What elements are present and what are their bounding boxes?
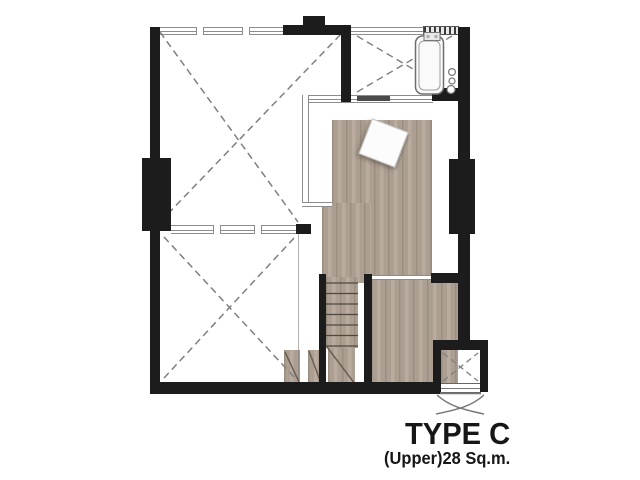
plan-type-label: TYPE C — [384, 419, 510, 449]
fixtures-layer — [0, 0, 640, 480]
condensing-unit-icon — [436, 394, 484, 415]
shower-controls-icon — [447, 69, 455, 94]
plan-area-label: (Upper)28 Sq.m. — [384, 449, 510, 468]
plan-caption: TYPE C (Upper)28 Sq.m. — [384, 419, 510, 468]
bathtub-icon — [416, 33, 444, 95]
floor-plan: TYPE C (Upper)28 Sq.m. — [0, 0, 640, 480]
